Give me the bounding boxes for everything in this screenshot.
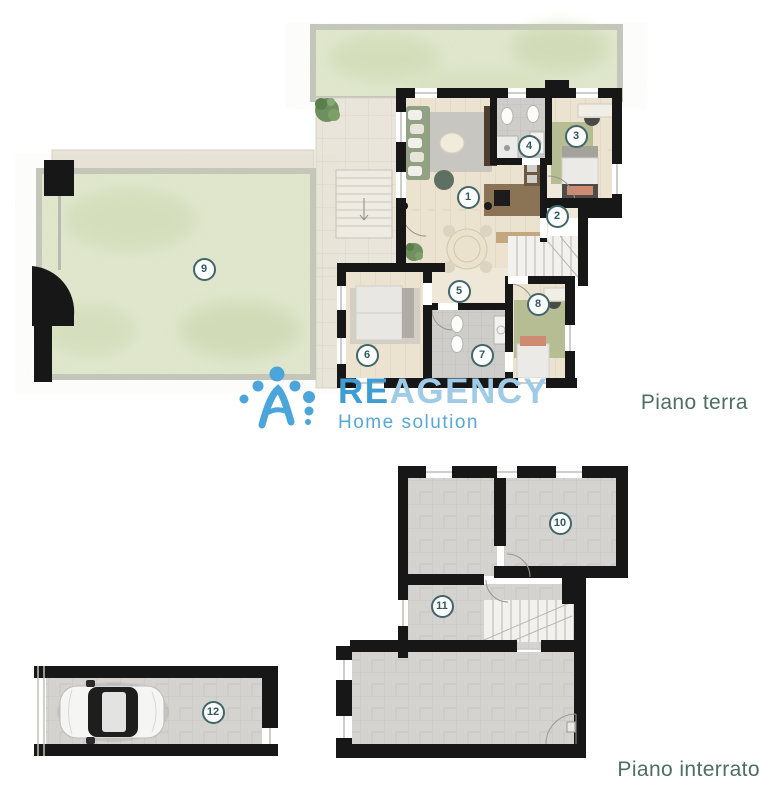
bedroom6-furniture — [350, 286, 420, 344]
piano-interrato-plan — [336, 466, 628, 758]
cooktop — [494, 190, 510, 206]
bed-pillow — [520, 336, 546, 346]
desk — [578, 104, 616, 117]
room-marker-6: 6 — [356, 344, 379, 367]
floor-label-ground: Piano terra — [641, 391, 748, 415]
room-marker-5: 5 — [448, 280, 471, 303]
toilet — [451, 316, 463, 333]
pouf — [434, 170, 454, 190]
interior-stairs-icon — [496, 232, 578, 278]
logo-subtitle: Home solution — [338, 412, 638, 434]
piano-terra-plan — [32, 24, 623, 388]
room-marker-7: 7 — [471, 344, 494, 367]
garage-plan — [34, 666, 278, 756]
room-marker-9: 9 — [193, 258, 216, 281]
room-marker-10: 10 — [549, 512, 572, 535]
bidet — [451, 336, 463, 353]
bed-blanket — [567, 186, 593, 195]
toilet — [501, 108, 513, 125]
room-marker-4: 4 — [518, 135, 541, 158]
agency-logo-word: REAGENCY — [338, 374, 638, 409]
bed-duvet — [562, 158, 598, 186]
room-marker-8: 8 — [527, 293, 550, 316]
room-marker-1: 1 — [457, 186, 480, 209]
room-marker-2: 2 — [546, 205, 569, 228]
room-marker-3: 3 — [565, 125, 588, 148]
basement-hall-floor — [352, 652, 574, 744]
coffee-table — [440, 133, 464, 153]
driveway-edge — [38, 666, 44, 756]
floorplan-canvas: 123456789101112 REAGENCY Home solution P… — [0, 0, 778, 790]
agency-logo-icon — [228, 362, 322, 436]
garden-left — [32, 160, 316, 382]
bed-pillows — [402, 288, 414, 338]
room-marker-11: 11 — [431, 595, 454, 618]
car-roof — [102, 692, 126, 732]
kitchen-counter — [484, 184, 540, 216]
car-top-view — [57, 680, 169, 744]
door-size-tag — [567, 722, 575, 732]
mirror — [86, 680, 95, 687]
agency-logo-text: REAGENCY Home solution — [338, 374, 638, 434]
mirror — [86, 737, 95, 744]
outdoor-stairs-icon — [336, 170, 392, 238]
bidet — [527, 106, 539, 123]
room11-upper-floor — [406, 476, 497, 576]
logo-re: RE — [338, 372, 390, 411]
logo-agency: AGENCY — [390, 372, 549, 411]
sink — [527, 164, 537, 172]
floor-label-basement: Piano interrato — [617, 758, 760, 782]
basement-stairs-icon — [484, 600, 573, 642]
room-marker-12: 12 — [202, 701, 225, 724]
